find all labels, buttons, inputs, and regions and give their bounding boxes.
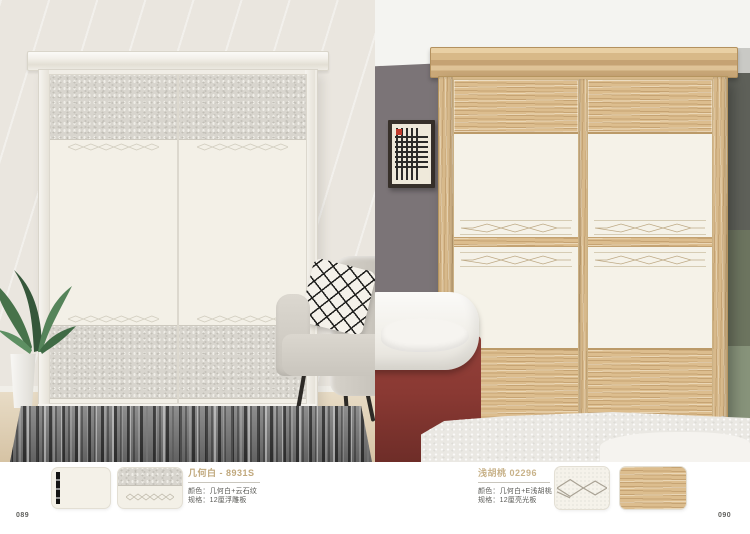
diamond-chain-decor bbox=[595, 223, 705, 233]
wardrobe-right-post bbox=[713, 77, 727, 437]
diamond-pattern-decor bbox=[557, 475, 607, 501]
decor-line bbox=[460, 252, 572, 253]
texture-sample bbox=[118, 468, 182, 486]
wood-panel-top bbox=[588, 80, 712, 134]
title-divider bbox=[478, 482, 550, 483]
wardrobe-right-crown bbox=[430, 47, 738, 78]
door-handle bbox=[290, 217, 295, 253]
swatch-white-door bbox=[52, 468, 110, 508]
wood-divider-strip bbox=[454, 237, 578, 247]
decor-line bbox=[594, 234, 706, 235]
diamond-chain-decor bbox=[126, 493, 174, 501]
picture-frame bbox=[388, 120, 435, 188]
product-info-left: 几何白 - 8931S 颜色：几何白+云石纹 规格：12厘浮雕板 bbox=[188, 468, 368, 505]
sliding-door-right bbox=[587, 79, 713, 432]
title-divider bbox=[188, 482, 260, 483]
spec-line: 规格：12厘浮雕板 bbox=[188, 496, 368, 505]
abstract-artwork bbox=[395, 128, 428, 180]
decor-line bbox=[594, 220, 706, 221]
texture-panel-top bbox=[179, 75, 306, 140]
red-seal-mark bbox=[396, 129, 402, 135]
catalog-page: 几何白 - 8931S 颜色：几何白+云石纹 规格：12厘浮雕板 089 浅胡桃… bbox=[0, 0, 750, 534]
picture-mat bbox=[392, 124, 431, 184]
door-handle bbox=[61, 217, 66, 253]
wood-divider-strip bbox=[588, 237, 712, 247]
wardrobe-right-doors bbox=[453, 79, 713, 432]
swatch-diamond-pattern bbox=[555, 467, 609, 509]
swatch-texture-diamond bbox=[118, 468, 182, 508]
diamond-chain-decor bbox=[461, 223, 571, 233]
spec-line: 颜色：几何白+云石纹 bbox=[188, 487, 368, 496]
diamond-chain-decor bbox=[595, 255, 705, 265]
decor-line bbox=[594, 252, 706, 253]
decor-line bbox=[460, 220, 572, 221]
armchair-seat bbox=[282, 334, 375, 376]
decor-line bbox=[460, 234, 572, 235]
page-number-left: 089 bbox=[16, 512, 29, 519]
wardrobe-left-doors bbox=[49, 74, 307, 404]
texture-panel-top bbox=[50, 75, 177, 140]
door-track-divider bbox=[579, 79, 587, 432]
diamond-chain-decor bbox=[461, 255, 571, 265]
blanket-fold bbox=[381, 318, 469, 352]
right-room-scene bbox=[375, 0, 750, 462]
potted-plant bbox=[0, 252, 82, 362]
left-room-scene bbox=[0, 0, 375, 462]
diamond-chain-decor bbox=[197, 315, 288, 323]
wood-panel-top bbox=[454, 80, 578, 134]
window-with-plants bbox=[727, 48, 750, 462]
product-info-bar: 几何白 - 8931S 颜色：几何白+云石纹 规格：12厘浮雕板 089 浅胡桃… bbox=[0, 462, 750, 534]
wardrobe-left-crown bbox=[27, 51, 329, 71]
door-handle-icon bbox=[56, 472, 60, 504]
striped-rug bbox=[10, 406, 372, 462]
wardrobe-right bbox=[438, 76, 728, 440]
diamond-chain-decor bbox=[68, 143, 159, 151]
product-title: 几何白 - 8931S bbox=[188, 468, 368, 479]
decor-line bbox=[594, 266, 706, 267]
swatch-wood-grain bbox=[620, 467, 686, 509]
decor-line bbox=[460, 266, 572, 267]
white-throw bbox=[600, 432, 750, 462]
page-number-right: 090 bbox=[718, 512, 731, 519]
diamond-chain-decor bbox=[197, 143, 288, 151]
